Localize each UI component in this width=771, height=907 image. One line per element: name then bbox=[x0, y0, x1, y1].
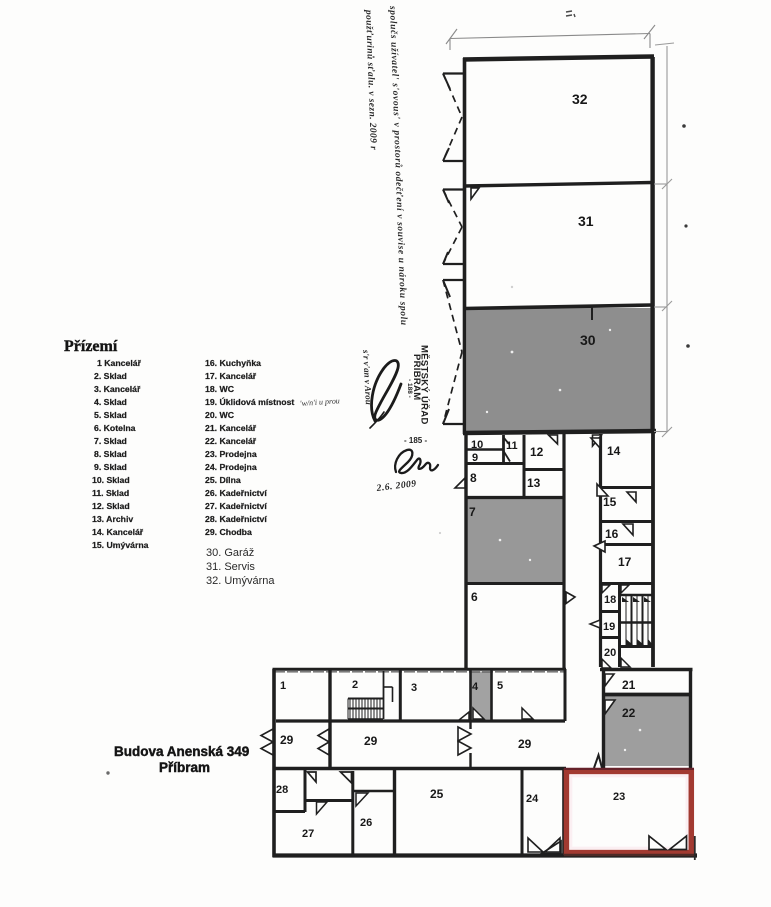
svg-text:29: 29 bbox=[518, 737, 532, 751]
svg-text:13: 13 bbox=[527, 476, 541, 490]
svg-text:6. Kotelna: 6. Kotelna bbox=[94, 423, 136, 433]
svg-text:26. Kadeřnictví: 26. Kadeřnictví bbox=[205, 488, 267, 498]
svg-text:5: 5 bbox=[497, 680, 503, 692]
svg-text:- 188 -: - 188 - bbox=[406, 379, 413, 398]
svg-text:23. Prodejna: 23. Prodejna bbox=[205, 449, 257, 459]
svg-text:Budova Anenská 349: Budova Anenská 349 bbox=[114, 744, 249, 759]
svg-text:30: 30 bbox=[580, 332, 596, 348]
svg-text:1 Kancelář: 1 Kancelář bbox=[97, 358, 142, 368]
svg-text:9. Sklad: 9. Sklad bbox=[94, 462, 127, 472]
svg-text:Přízemí: Přízemí bbox=[64, 338, 118, 355]
svg-text:16: 16 bbox=[605, 527, 619, 541]
svg-text:Příbram: Příbram bbox=[159, 760, 210, 775]
svg-text:15: 15 bbox=[603, 495, 617, 509]
svg-text:32. Umývárna: 32. Umývárna bbox=[206, 575, 275, 587]
svg-text:11. Sklad: 11. Sklad bbox=[92, 488, 129, 498]
svg-text:23: 23 bbox=[613, 791, 625, 803]
svg-text:29: 29 bbox=[364, 734, 378, 748]
svg-text:28. Kadeřnictví: 28. Kadeřnictví bbox=[205, 514, 267, 524]
svg-text:27. Kadeřnictví: 27. Kadeřnictví bbox=[205, 501, 267, 511]
svg-text:4: 4 bbox=[472, 681, 479, 693]
svg-text:12: 12 bbox=[530, 445, 544, 459]
svg-text:10: 10 bbox=[471, 439, 483, 451]
svg-text:12. Sklad: 12. Sklad bbox=[92, 501, 130, 511]
svg-text:3. Kancelář: 3. Kancelář bbox=[94, 384, 141, 394]
svg-text:24: 24 bbox=[526, 793, 539, 805]
svg-text:2. Sklad: 2. Sklad bbox=[94, 371, 127, 381]
svg-text:22. Kancelář: 22. Kancelář bbox=[205, 436, 257, 446]
svg-text:17: 17 bbox=[618, 555, 632, 569]
svg-text:25: 25 bbox=[430, 787, 444, 801]
svg-text:19. Úklidová místnost: 19. Úklidová místnost bbox=[205, 396, 294, 407]
svg-text:18: 18 bbox=[604, 594, 616, 606]
svg-text:8: 8 bbox=[470, 471, 477, 485]
svg-text:22: 22 bbox=[622, 706, 636, 720]
svg-text:21. Kancelář: 21. Kancelář bbox=[205, 423, 257, 433]
svg-text:14: 14 bbox=[607, 444, 621, 458]
svg-text:27: 27 bbox=[302, 828, 314, 840]
svg-text:17. Kancelář: 17. Kancelář bbox=[205, 371, 257, 381]
svg-text:19: 19 bbox=[603, 621, 615, 633]
svg-text:9: 9 bbox=[472, 452, 478, 464]
svg-text:5. Sklad: 5. Sklad bbox=[94, 410, 127, 420]
svg-text:6: 6 bbox=[471, 590, 478, 604]
svg-text:7. Sklad: 7. Sklad bbox=[94, 436, 127, 446]
svg-text:28: 28 bbox=[276, 784, 288, 796]
svg-text:31. Servis: 31. Servis bbox=[206, 561, 255, 573]
svg-text:31: 31 bbox=[578, 213, 594, 229]
svg-text:25. Dílna: 25. Dílna bbox=[205, 475, 241, 485]
svg-text:8. Sklad: 8. Sklad bbox=[94, 449, 127, 459]
svg-text:11: 11 bbox=[506, 440, 518, 452]
svg-text:3: 3 bbox=[411, 682, 417, 694]
svg-text:2: 2 bbox=[352, 679, 358, 691]
svg-text:14. Kancelář: 14. Kancelář bbox=[92, 527, 144, 537]
svg-text:20: 20 bbox=[604, 647, 616, 659]
svg-text:15. Umývárna: 15. Umývárna bbox=[92, 540, 149, 550]
svg-text:10. Sklad: 10. Sklad bbox=[92, 475, 130, 485]
svg-text:4. Sklad: 4. Sklad bbox=[94, 397, 127, 407]
svg-text:1: 1 bbox=[280, 680, 286, 692]
svg-text:20. WC: 20. WC bbox=[205, 410, 235, 420]
svg-text:29: 29 bbox=[280, 733, 294, 747]
svg-text:21: 21 bbox=[622, 678, 636, 692]
svg-text:18. WC: 18. WC bbox=[205, 384, 235, 394]
svg-text:13. Archiv: 13. Archiv bbox=[92, 514, 133, 524]
svg-text:7: 7 bbox=[469, 505, 476, 519]
svg-text:16. Kuchyňka: 16. Kuchyňka bbox=[205, 358, 261, 368]
svg-text:32: 32 bbox=[572, 91, 588, 107]
svg-text:29. Chodba: 29. Chodba bbox=[205, 527, 252, 537]
svg-text:- 185 -: - 185 - bbox=[404, 436, 427, 445]
svg-text:24. Prodejna: 24. Prodejna bbox=[205, 462, 257, 472]
svg-text:30. Garáž: 30. Garáž bbox=[206, 547, 254, 559]
svg-text:26: 26 bbox=[360, 817, 372, 829]
